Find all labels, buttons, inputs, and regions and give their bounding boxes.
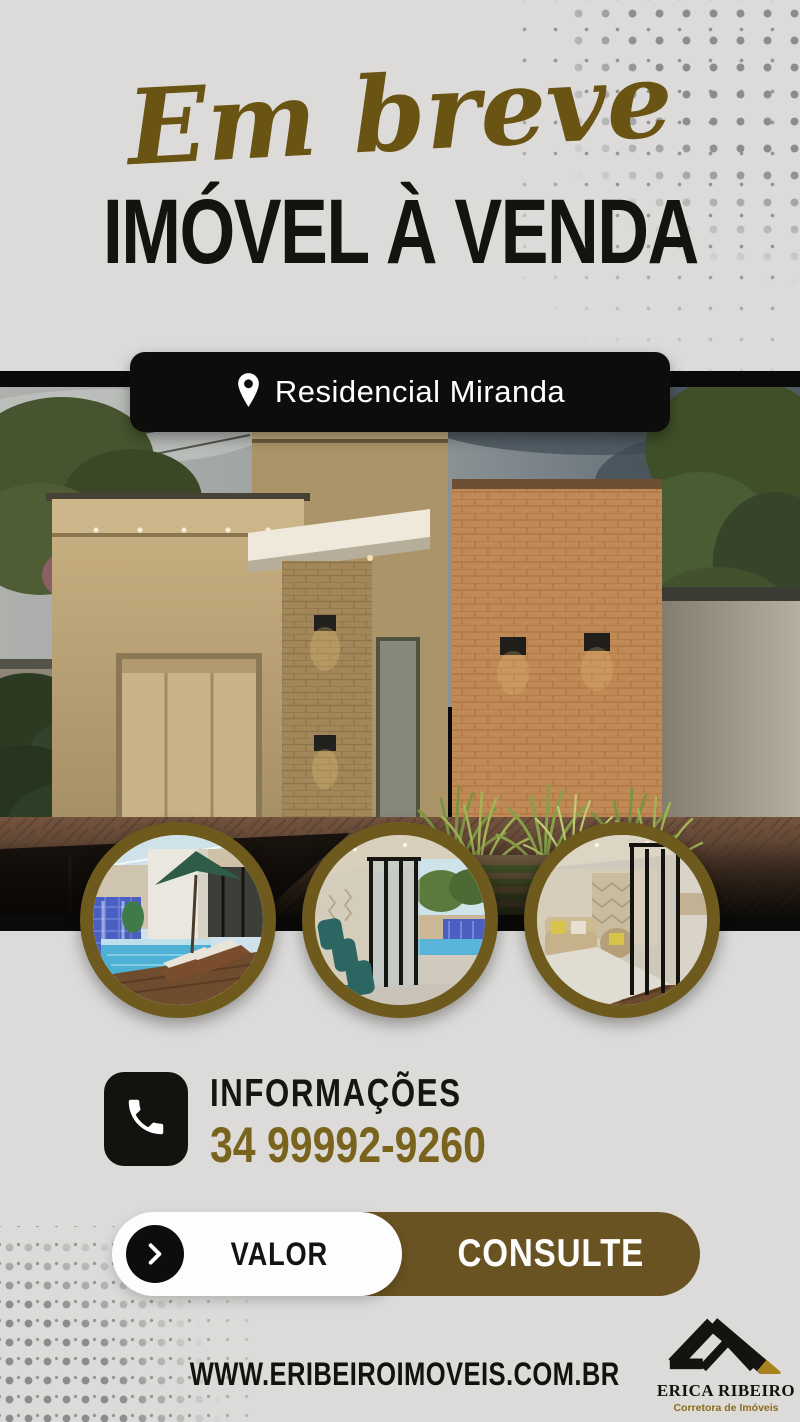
brand-name: ERICA RIBEIRO: [652, 1381, 800, 1401]
thumbnail-living-area: [524, 822, 720, 1018]
phone-box: [104, 1072, 188, 1166]
location-label: Residencial Miranda: [275, 374, 565, 410]
chevron-right-icon: [126, 1225, 184, 1283]
consulte-label: CONSULTE: [402, 1212, 700, 1296]
brand-tagline: Corretora de Imóveis: [652, 1402, 800, 1414]
contact-phone-number: 34 99992-9260: [210, 1116, 486, 1174]
cta-row: CONSULTE VALOR: [0, 1212, 800, 1296]
thumbnail-pool-area: [80, 822, 276, 1018]
roof-logo-icon: [652, 1312, 800, 1379]
location-pin-icon: [235, 372, 262, 413]
brand-logo: ERICA RIBEIRO Corretora de Imóveis: [652, 1312, 800, 1414]
contact-heading: INFORMAÇÕES: [210, 1072, 462, 1116]
valor-label: VALOR: [184, 1236, 374, 1273]
thumbnail-patio-doors: [302, 822, 498, 1018]
phone-icon: [123, 1094, 169, 1145]
page-title: IMÓVEL À VENDA: [0, 184, 800, 281]
valor-pill[interactable]: VALOR: [112, 1212, 402, 1296]
location-badge: Residencial Miranda: [130, 352, 670, 432]
property-ad-poster: Em breve IMÓVEL À VENDA Residencial Mira…: [0, 0, 800, 1422]
script-headline: Em breve: [0, 31, 800, 197]
